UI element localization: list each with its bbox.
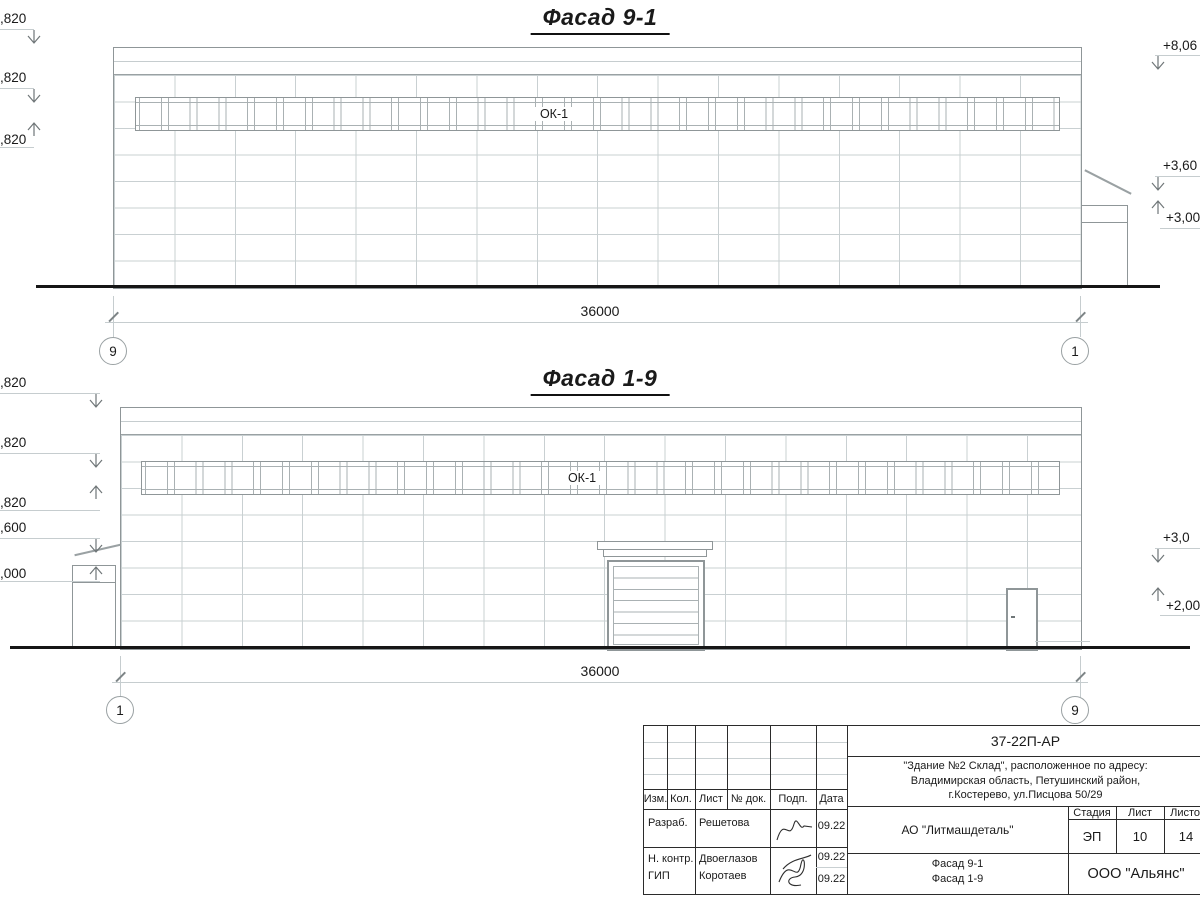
- axis-label: 9: [109, 344, 117, 359]
- axis-marker-1: 1: [106, 696, 134, 724]
- elevation-text: +8,06: [1163, 38, 1197, 53]
- elevation-text: ,820: [0, 11, 26, 26]
- elevation-text: ,820: [0, 375, 26, 390]
- elevation-text: ,820: [0, 132, 26, 147]
- elevation-arrow-up-icon: [88, 483, 104, 499]
- elevation-leader: [0, 538, 100, 539]
- ground-line-bottom: [10, 646, 1190, 649]
- axis-marker-9: 9: [99, 337, 127, 365]
- rev-header-doc: № док.: [727, 790, 770, 808]
- elevation-text: +3,0: [1163, 530, 1190, 545]
- date-gip: 09.22: [816, 872, 847, 886]
- client-company: АО "Литмашдеталь": [847, 806, 1068, 853]
- sectional-gate: [607, 560, 705, 651]
- elevation-arrow-down-icon: [88, 539, 104, 555]
- elevation-arrow-up-icon: [1150, 585, 1166, 601]
- design-organization: ООО "Альянс": [1068, 853, 1200, 894]
- elevation-leader: [1160, 228, 1200, 229]
- door-handle: [1011, 616, 1015, 618]
- address-line-2: Владимирская область, Петушинский район,: [847, 774, 1200, 789]
- axis-label: 1: [1071, 344, 1079, 359]
- rev-header-izm: Изм.: [644, 790, 667, 808]
- annex-right: [1081, 205, 1128, 288]
- annex-canopy-line: [1084, 169, 1131, 194]
- elevation-leader: [0, 581, 100, 582]
- elevation-text: ,820: [0, 435, 26, 450]
- window-band: ОК-1: [135, 97, 1060, 131]
- dimension-line: [112, 682, 1088, 683]
- axis-marker-1: 1: [1061, 337, 1089, 365]
- dimension-line: [105, 322, 1088, 323]
- elevation-arrow-down-icon: [26, 89, 42, 105]
- entrance-door: [1006, 588, 1038, 651]
- sheet-title-line-1: Фасад 9-1: [847, 857, 1068, 872]
- elevation-leader: [0, 453, 100, 454]
- window-band-label: ОК-1: [530, 107, 578, 121]
- address-line-1: "Здание №2 Склад", расположенное по адре…: [847, 759, 1200, 774]
- role-developer: Разраб.: [648, 816, 694, 830]
- document-code: 37-22П-АР: [847, 726, 1200, 756]
- dimension-value: 36000: [560, 303, 640, 319]
- code-divider: [847, 756, 1200, 757]
- elevation-arrow-down-icon: [88, 454, 104, 470]
- header-row-line: [644, 809, 847, 810]
- window-band-label: ОК-1: [558, 471, 606, 485]
- sheets-header: Листов: [1164, 806, 1200, 819]
- window-band: ОК-1: [141, 461, 1060, 495]
- elevation-text: ,600: [0, 520, 26, 535]
- elevation-text: ,000: [0, 566, 26, 581]
- annex-cap: [1081, 205, 1128, 223]
- row-line: [644, 847, 847, 848]
- rev-header-kol: Кол.: [667, 790, 695, 808]
- elevation-leader: [0, 393, 100, 394]
- facade-9-1-title: Фасад 9-1: [531, 4, 670, 35]
- elevation-text: +3,60: [1163, 158, 1197, 173]
- axis-label: 1: [116, 703, 124, 718]
- rev-header-data: Дата: [816, 790, 847, 808]
- elevation-leader: [0, 147, 34, 148]
- elevation-text: ,820: [0, 70, 26, 85]
- sheet-header: Лист: [1116, 806, 1164, 819]
- facade-1-9-building: ОК-1: [120, 407, 1082, 650]
- drawing-sheet: Фасад 9-1 ОК-1 36000 9 1 ,820 ,820 ,820 …: [0, 0, 1200, 900]
- gate-slats: [613, 566, 699, 645]
- elevation-leader: [0, 510, 100, 511]
- gate-canopy-fascia: [603, 549, 707, 557]
- project-address: "Здание №2 Склад", расположенное по адре…: [847, 759, 1200, 803]
- sheet-value: 10: [1116, 819, 1164, 853]
- elevation-arrow-down-icon: [1150, 549, 1166, 565]
- address-line-3: г.Костерево, ул.Писцова 50/29: [847, 788, 1200, 803]
- name-ncontrol: Двоеглазов: [699, 852, 769, 866]
- facade-1-9-title: Фасад 1-9: [531, 365, 670, 396]
- ground-line-top: [36, 285, 1160, 288]
- elevation-arrow-down-icon: [26, 30, 42, 46]
- elevation-arrow-up-icon: [26, 120, 42, 136]
- sheets-value: 14: [1164, 819, 1200, 853]
- door-step-line: [1035, 641, 1090, 642]
- parapet-line: [121, 421, 1081, 422]
- sheet-title: Фасад 9-1 Фасад 1-9: [847, 857, 1068, 887]
- axis-marker-9: 9: [1061, 696, 1089, 724]
- title-block: Изм. Кол. Лист № док. Подп. Дата Разраб.…: [643, 725, 1200, 895]
- rev-header-list: Лист: [695, 790, 727, 808]
- elevation-text: ,820: [0, 495, 26, 510]
- elevation-arrow-up-icon: [1150, 198, 1166, 214]
- facade-9-1-building: ОК-1: [113, 47, 1082, 289]
- signature-icon: [772, 812, 816, 846]
- elevation-arrow-down-icon: [1150, 56, 1166, 72]
- date-developer: 09.22: [816, 819, 847, 833]
- axis-label: 9: [1071, 703, 1079, 718]
- elevation-arrow-down-icon: [88, 394, 104, 410]
- date-ncontrol: 09.22: [816, 850, 847, 864]
- elevation-arrow-up-icon: [88, 564, 104, 580]
- stage-value: ЭП: [1068, 819, 1116, 853]
- elevation-leader: [1160, 615, 1200, 616]
- rev-header-podp: Подп.: [770, 790, 816, 808]
- role-gip: ГИП: [648, 869, 694, 883]
- role-ncontrol: Н. контр.: [648, 852, 696, 866]
- elevation-text: +2,00: [1166, 598, 1200, 613]
- stage-header: Стадия: [1068, 806, 1116, 819]
- signature-icon: [772, 848, 816, 891]
- name-developer: Решетова: [699, 816, 769, 830]
- parapet-line: [114, 61, 1081, 62]
- sheet-title-line-2: Фасад 1-9: [847, 872, 1068, 887]
- name-gip: Коротаев: [699, 869, 769, 883]
- dimension-value: 36000: [560, 663, 640, 679]
- elevation-arrow-down-icon: [1150, 177, 1166, 193]
- elevation-text: +3,00: [1166, 210, 1200, 225]
- date-divider: [816, 867, 847, 868]
